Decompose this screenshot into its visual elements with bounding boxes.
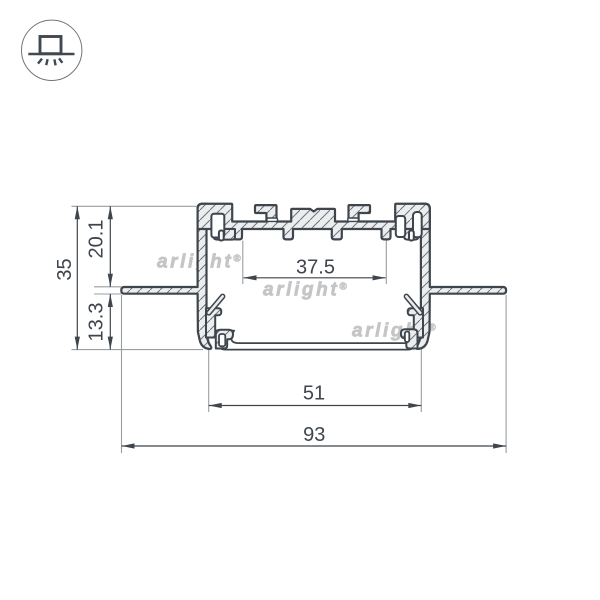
svg-text:37.5: 37.5 [296,257,335,279]
svg-text:13.3: 13.3 [86,303,108,342]
svg-text:20.1: 20.1 [86,220,108,259]
svg-text:93: 93 [303,424,325,446]
svg-text:35: 35 [54,258,76,280]
svg-text:51: 51 [303,383,325,405]
svg-text:arlight®: arlight® [263,280,349,301]
